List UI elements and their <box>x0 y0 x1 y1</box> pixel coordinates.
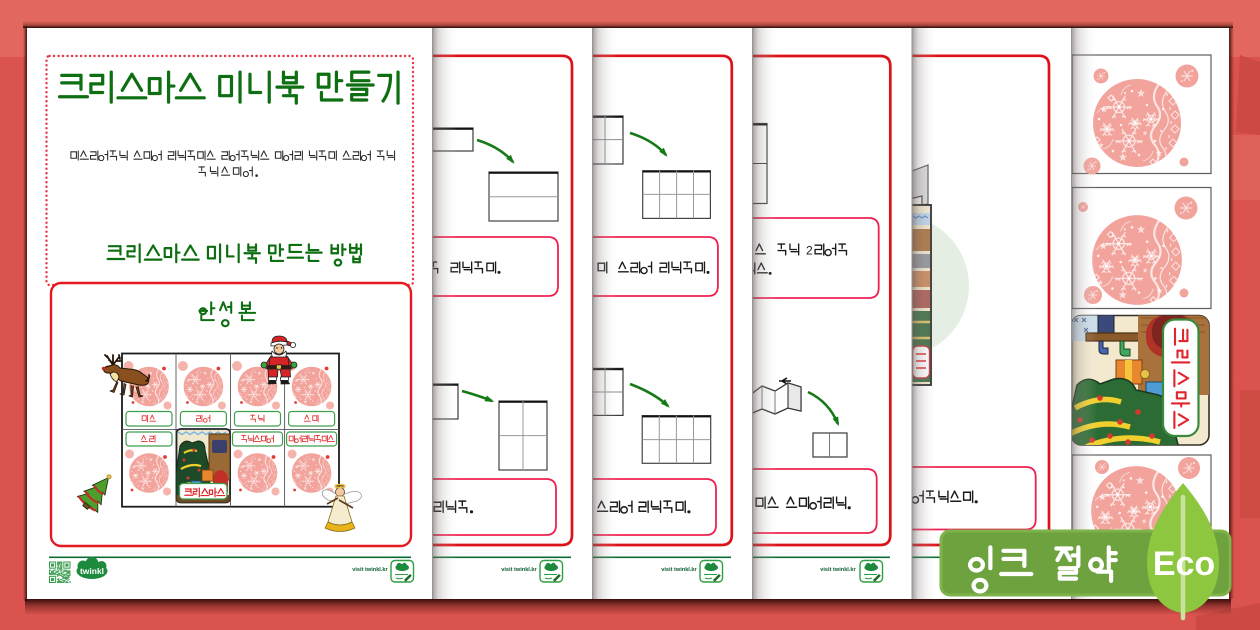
svg-text:visit twinkl.kr: visit twinkl.kr <box>820 567 856 573</box>
svg-text:twinkl: twinkl <box>80 566 104 576</box>
svg-text:2: 2 <box>806 244 813 258</box>
svg-text:Eco: Eco <box>1153 545 1215 583</box>
svg-text:visit twinkl.kr: visit twinkl.kr <box>661 567 697 573</box>
svg-text:visit twinkl.kr: visit twinkl.kr <box>501 567 537 573</box>
svg-text:visit twinkl.kr: visit twinkl.kr <box>352 567 388 573</box>
